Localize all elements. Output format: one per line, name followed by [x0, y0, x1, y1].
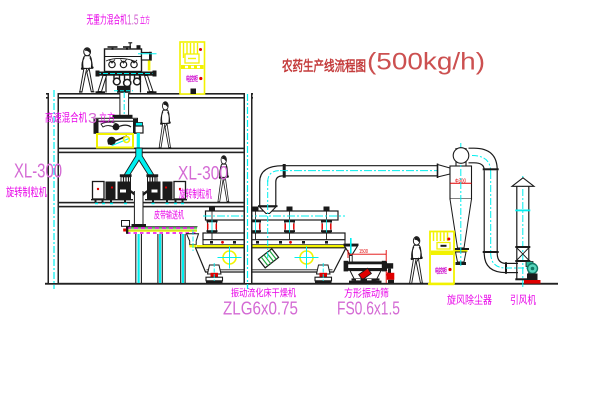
- svg-text:立方: 立方: [140, 15, 150, 27]
- svg-text:1500: 1500: [359, 249, 368, 255]
- svg-text:高速混合机: 高速混合机: [45, 111, 87, 125]
- svg-text:旋转制粒机: 旋转制粒机: [179, 187, 212, 201]
- svg-text:FS0.6x1.5: FS0.6x1.5: [337, 299, 400, 319]
- svg-text:XL-300: XL-300: [14, 161, 62, 183]
- svg-text:皮带输送机: 皮带输送机: [154, 209, 184, 222]
- svg-text:无重力混合机: 无重力混合机: [87, 13, 128, 27]
- svg-text:农药生产线流程图: 农药生产线流程图: [281, 58, 366, 74]
- svg-text:旋风除尘器: 旋风除尘器: [447, 293, 492, 307]
- svg-text:引风机: 引风机: [510, 293, 536, 307]
- svg-text:XL-300: XL-300: [178, 164, 228, 185]
- svg-text:电控柜: 电控柜: [435, 266, 447, 275]
- svg-text:立方: 立方: [99, 111, 115, 125]
- svg-text:旋转制粒机: 旋转制粒机: [6, 185, 47, 199]
- svg-text:(500kg/h): (500kg/h): [367, 49, 485, 76]
- svg-text:电控柜: 电控柜: [186, 74, 198, 83]
- svg-text:ZLG6x0.75: ZLG6x0.75: [223, 299, 298, 319]
- svg-text:1.5: 1.5: [127, 12, 139, 29]
- svg-text:3: 3: [88, 110, 97, 127]
